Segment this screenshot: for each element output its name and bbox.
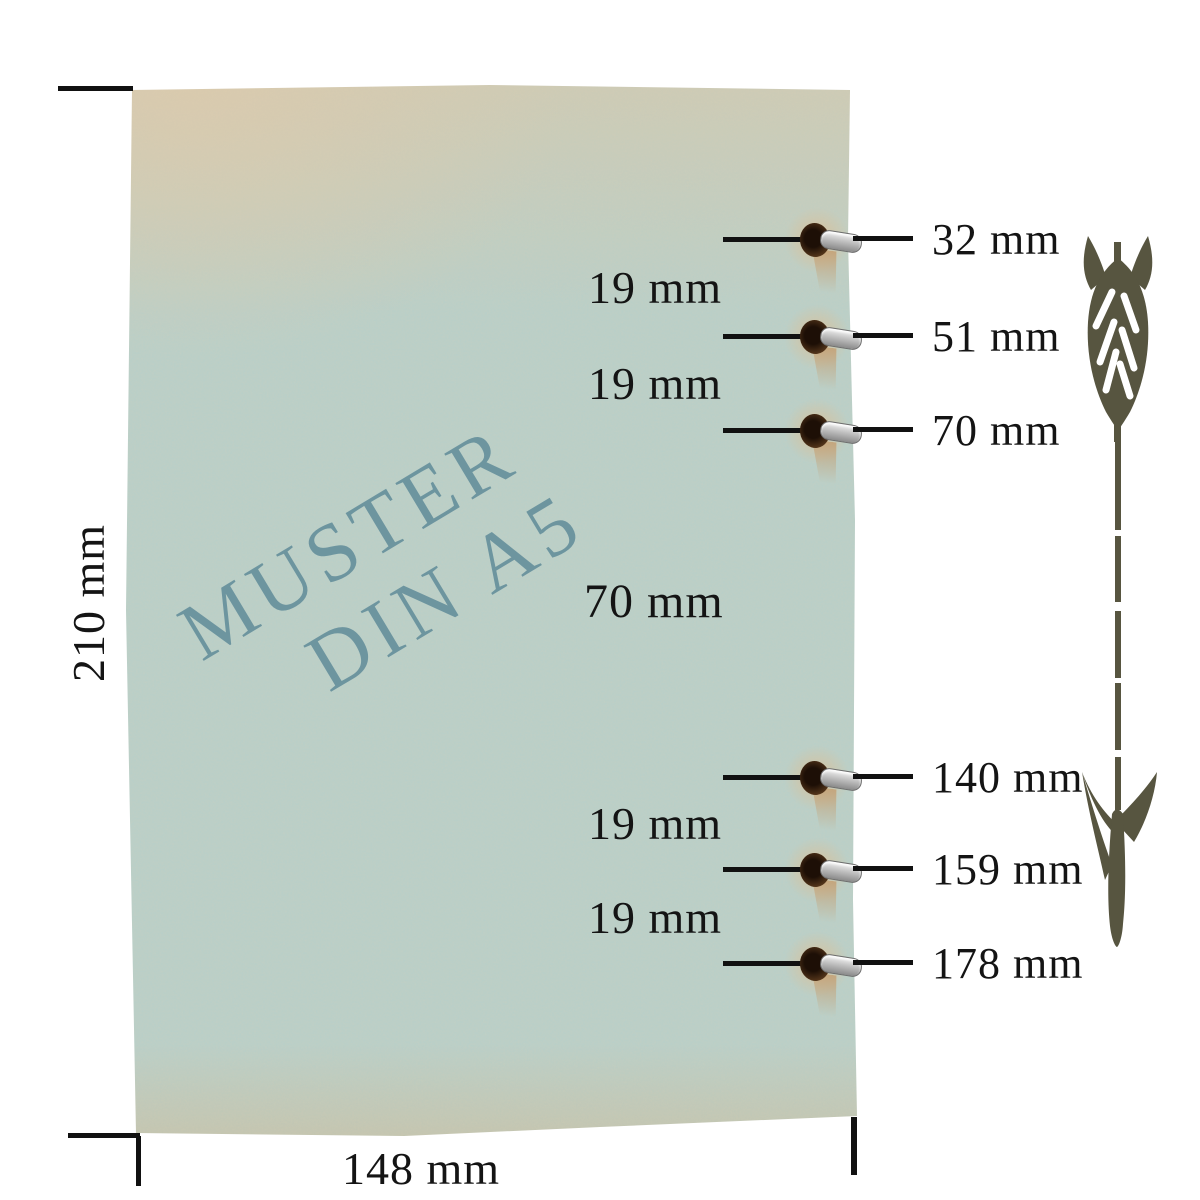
hole-gap-label: 19 mm <box>588 358 722 410</box>
bottom-left-tick-vertical <box>136 1136 141 1186</box>
bottom-right-tick-vertical <box>851 1117 857 1175</box>
hole-position-label: 51 mm <box>932 311 1060 363</box>
hole-gap-label: 19 mm <box>588 892 722 944</box>
hole-gap-label: 70 mm <box>584 576 724 628</box>
leader-line-right <box>853 774 913 779</box>
leader-line-right <box>853 333 913 338</box>
hole-position-label: 32 mm <box>932 214 1060 266</box>
leader-line-right <box>853 866 913 871</box>
leader-line-right <box>853 236 913 241</box>
top-left-tick <box>58 86 133 91</box>
leader-line-left <box>723 775 805 780</box>
hole-gap-label: 19 mm <box>588 262 722 314</box>
leader-line-left <box>723 334 805 339</box>
hole-position-label: 140 mm <box>932 752 1083 804</box>
hole-position-label: 159 mm <box>932 844 1083 896</box>
paper-width-label: 148 mm <box>342 1142 500 1195</box>
leader-line-left <box>723 237 805 242</box>
leader-line-left <box>723 961 805 966</box>
leader-line-left <box>723 428 805 433</box>
hole-gap-label: 19 mm <box>588 798 722 850</box>
paper-height-label: 210 mm <box>62 502 115 682</box>
leader-line-right <box>853 427 913 432</box>
arrow-down-icon <box>1072 230 1164 948</box>
diagram-canvas: MUSTER DIN A5 210 mm 148 mm 32 mm 51 mm … <box>0 0 1200 1200</box>
bottom-left-tick-horizontal <box>68 1133 140 1138</box>
hole-position-label: 178 mm <box>932 938 1083 990</box>
leader-line-left <box>723 867 805 872</box>
leader-line-right <box>853 960 913 965</box>
hole-position-label: 70 mm <box>932 405 1060 457</box>
